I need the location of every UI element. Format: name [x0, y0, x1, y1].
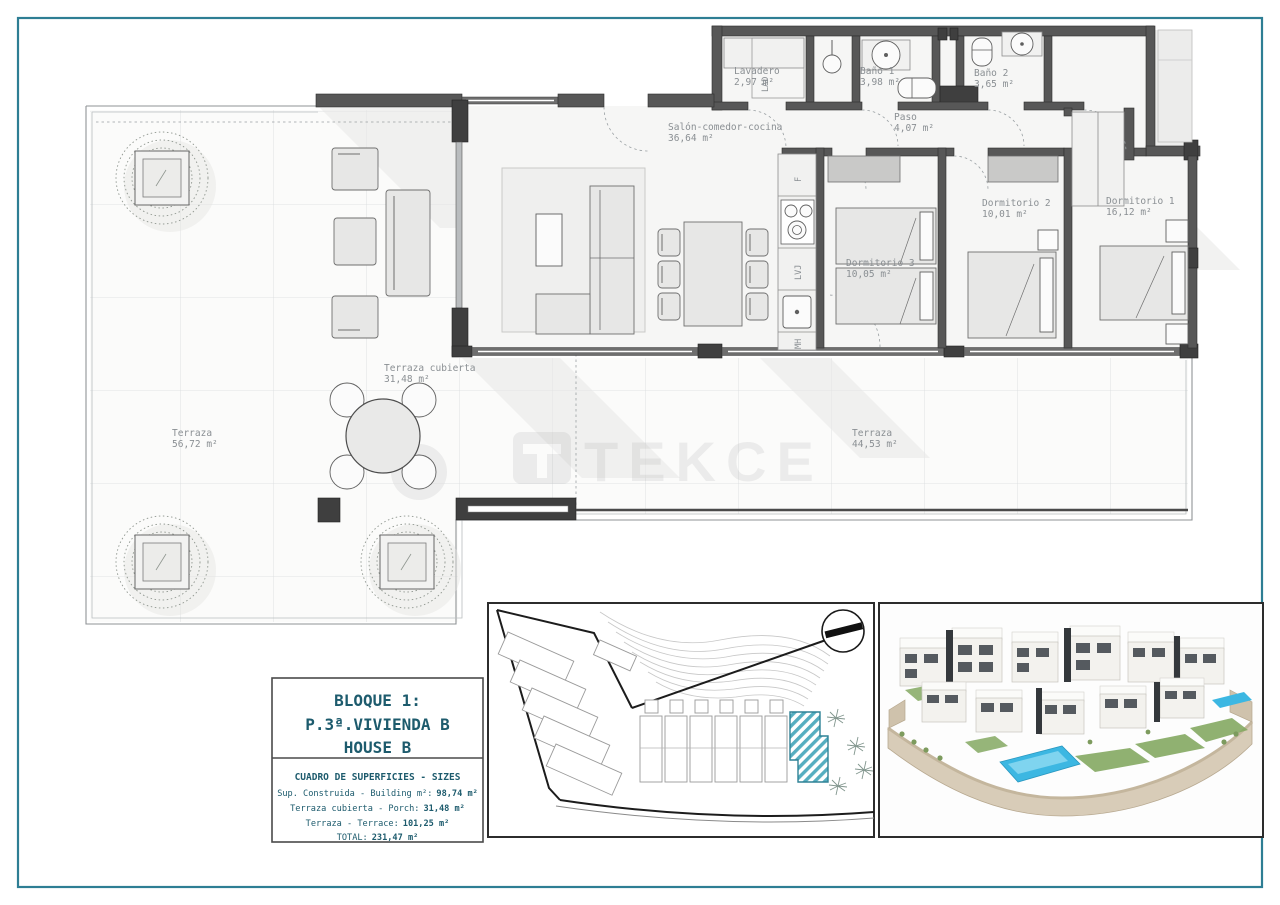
info-row-building: Sup. Construida - Building m²:98,74 m²: [277, 789, 478, 799]
nightstand: [1166, 220, 1188, 242]
tekce-watermark: TEKCE: [513, 430, 824, 493]
room-area-terraza-south: 44,53 m²: [852, 439, 898, 450]
room-area-paso: 4,07 m²: [894, 123, 934, 134]
nightstand-2: [1166, 324, 1188, 344]
room-label-paso: Paso: [894, 112, 917, 123]
info-block-title: BLOQUE 1:: [334, 691, 421, 710]
info-unit-title: P.3ª.VIVIENDA B: [305, 715, 450, 734]
info-house-title: HOUSE B: [344, 738, 412, 757]
plan-sheet: Lavadero 2,97 m² Baño 1 3,98 m² Baño 2 3…: [0, 0, 1280, 905]
info-row-terrace: Terraza - Terrace:101,25 m²: [306, 819, 450, 829]
watermark-text: TEKCE: [584, 430, 824, 493]
kitchen-units: [778, 154, 816, 350]
room-area-terraza-cubierta: 31,48 m²: [384, 374, 430, 385]
room-label-bano1: Baño 1: [860, 66, 895, 77]
nightstand: [1038, 230, 1058, 250]
balustrade-glass: [468, 506, 568, 512]
adjacent-roof: [1158, 30, 1192, 142]
info-row-total: TOTAL:231,47 m²: [337, 833, 419, 843]
room-area-dorm3: 10,05 m²: [846, 269, 892, 280]
closet: [988, 156, 1058, 182]
room-label-lavadero: Lavadero: [734, 66, 780, 77]
north-compass-icon: [822, 610, 864, 652]
cooktop-icon: [781, 200, 814, 244]
room-area-dorm1: 16,12 m²: [1106, 207, 1152, 218]
room-label-dorm2: Dormitorio 2: [982, 198, 1051, 209]
room-label-dorm3: Dormitorio 3: [846, 258, 915, 269]
room-area-salon: 36,64 m²: [668, 133, 714, 144]
closet: [828, 156, 900, 182]
terrace-column: [318, 498, 340, 522]
room-area-dorm2: 10,01 m²: [982, 209, 1028, 220]
room-label-dorm1: Dormitorio 1: [1106, 196, 1175, 207]
room-label-salon: Salón-comedor-cocina: [668, 122, 782, 133]
room-label-terraza-south: Terraza: [852, 428, 892, 439]
dining-set: [658, 222, 768, 326]
coffee-table: [536, 214, 562, 266]
site-plan-inset: [488, 603, 874, 837]
room-area-bano1: 3,98 m²: [860, 77, 900, 88]
room-label-bano2: Baño 2: [974, 68, 1008, 79]
info-box: BLOQUE 1: P.3ª.VIVIENDA B HOUSE B CUADRO…: [272, 678, 483, 843]
room-label-terraza-west: Terraza: [172, 428, 212, 439]
info-row-porch: Terraza cubierta - Porch:31,48 m²: [290, 804, 465, 814]
info-table-title: CUADRO DE SUPERFICIES - SIZES: [295, 772, 461, 783]
appliance-label-dishwasher: LVJ: [794, 265, 804, 280]
room-area-terraza-west: 56,72 m²: [172, 439, 218, 450]
appliance-label-microwave: MH: [794, 339, 804, 349]
appliance-label-washer: LAD: [761, 77, 771, 92]
appliance-label-fridge: F: [794, 177, 804, 182]
room-label-terraza-cubierta: Terraza cubierta: [384, 363, 476, 374]
sink-icon: [783, 296, 811, 328]
room-area-bano2: 3,65 m²: [974, 79, 1014, 90]
architectural-drawing: Lavadero 2,97 m² Baño 1 3,98 m² Baño 2 3…: [0, 0, 1280, 905]
